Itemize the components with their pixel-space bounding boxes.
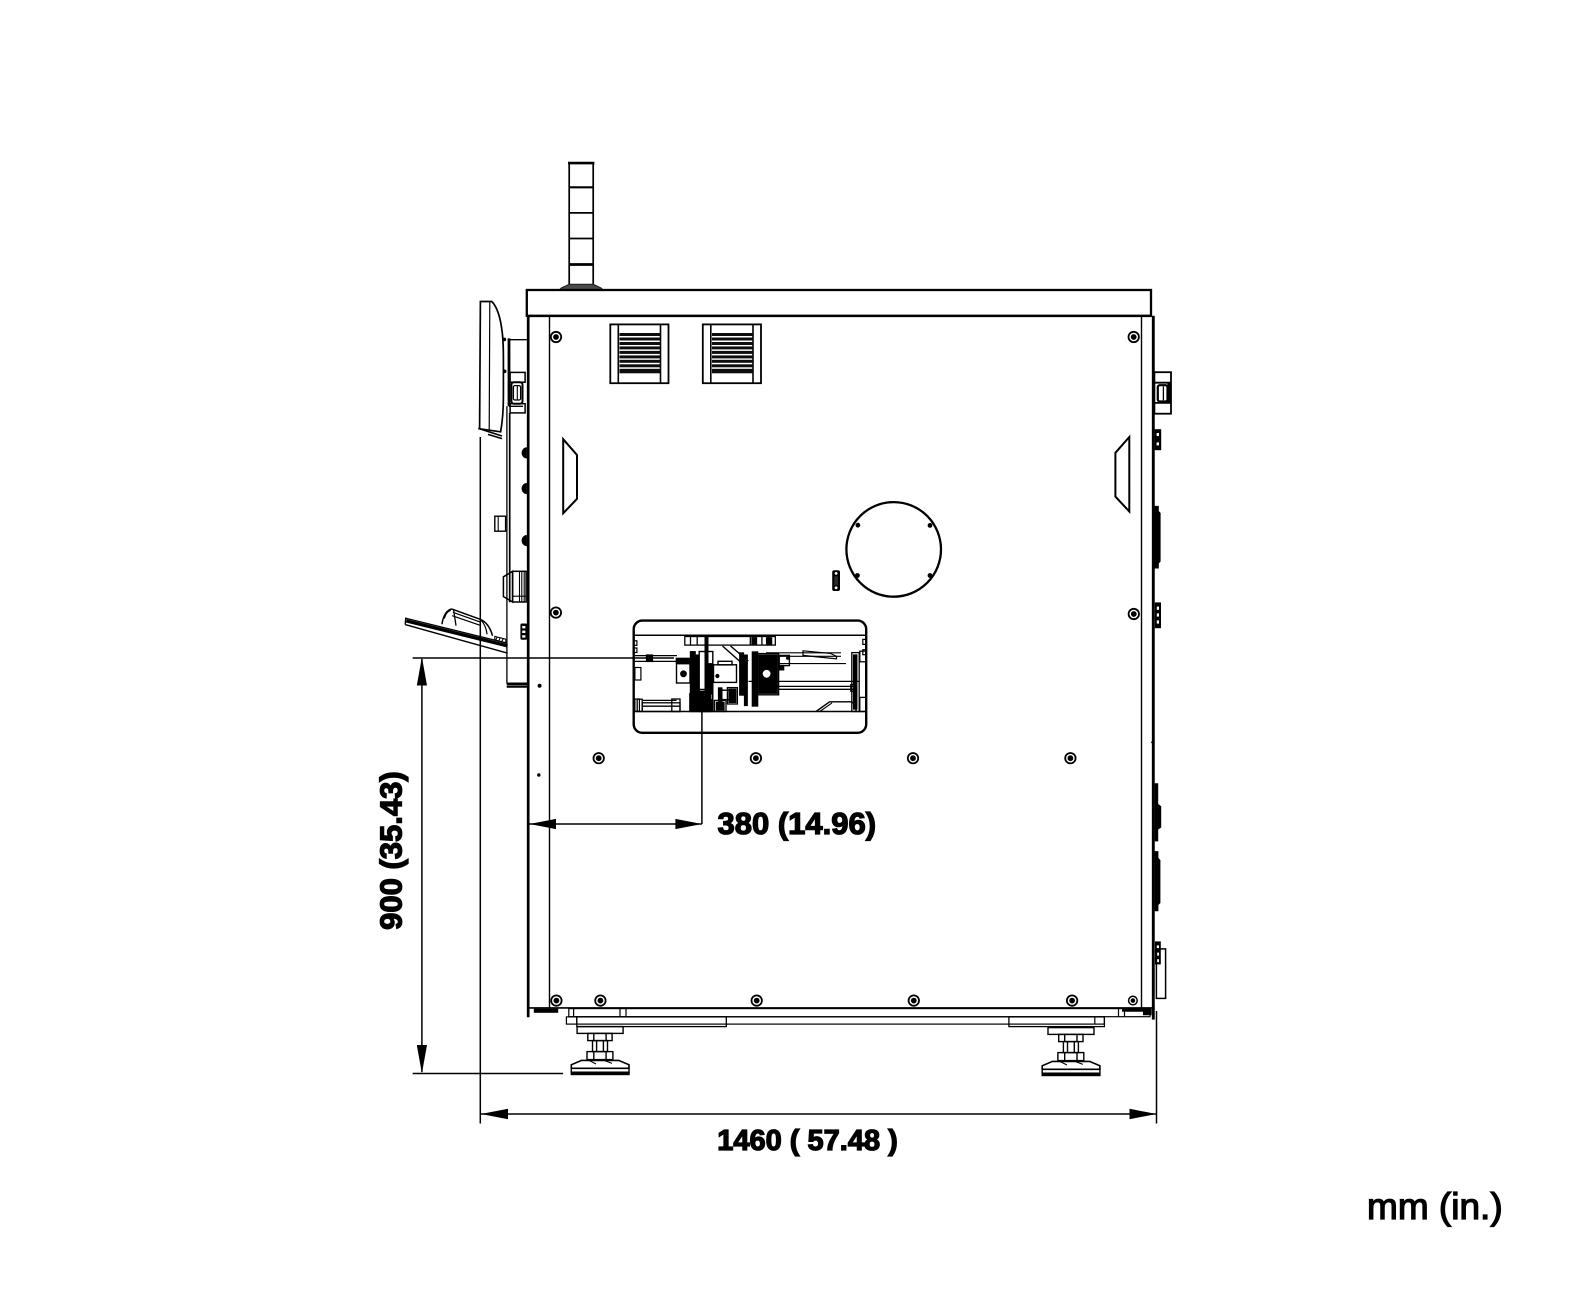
svg-text:1460 ( 57.48 ): 1460 ( 57.48 ): [717, 1125, 898, 1157]
svg-text:900 (35.43): 900 (35.43): [374, 771, 409, 930]
svg-text:mm (in.): mm (in.): [1367, 1186, 1503, 1227]
svg-text:380 (14.96): 380 (14.96): [718, 806, 877, 841]
